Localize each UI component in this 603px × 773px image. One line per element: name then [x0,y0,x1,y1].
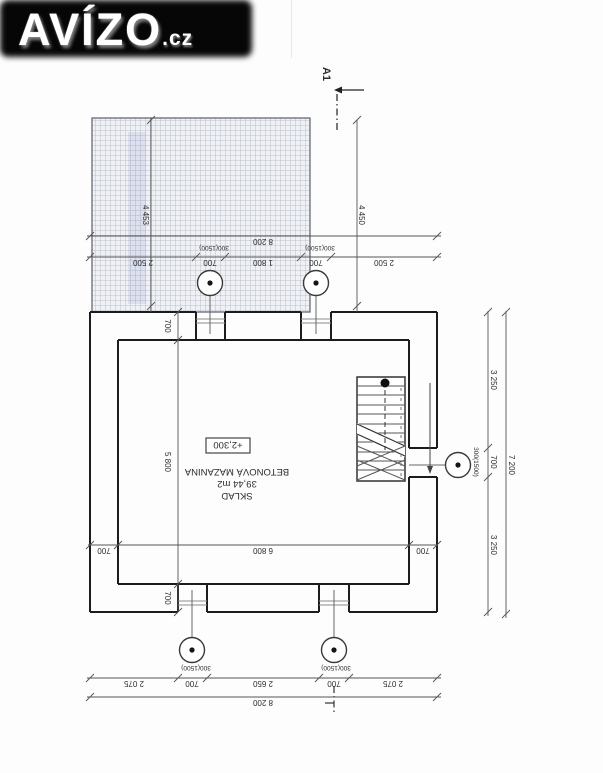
section-arrow-icon [334,87,342,94]
section-marker-bottom [325,686,334,712]
bottom-vent-symbols [180,638,347,663]
level-label: +2,300 [213,439,242,450]
dim-label: 700 [163,591,172,605]
staircase [357,377,405,481]
dim-label: 700 [97,546,111,555]
window-size-label: 300(1500) [199,244,229,251]
dim-right-chain: 3 250 700 3 250 300(1500) [472,308,498,616]
dim-label: 4 453 [141,205,150,226]
dim-bottom-overall: 8 200 [86,693,441,707]
bottom-wall-openings [178,590,349,637]
dim-label: 2 500 [132,258,153,267]
dim-label: 4 450 [357,205,366,226]
room-name-label: SKLAD [221,490,252,501]
dim-label: 3 250 [489,370,498,391]
room-area-label: 39,44 m2 [217,478,257,489]
window-size-label: 300(1500) [305,244,335,251]
dim-label: 2 075 [382,679,403,688]
dim-right-overall: 7 200 [502,308,516,618]
dim-inner-width: 700 6 800 700 [86,541,441,555]
window-size-label: 300(1500) [472,447,479,477]
dim-label: 8 200 [252,698,273,707]
dim-label: 2 075 [123,679,144,688]
window-size-label: 300(1500) [181,664,211,671]
logo-text: AVÍZO [18,4,162,55]
logo-suffix: .cz [162,27,193,50]
dim-label: 2 650 [252,679,273,688]
right-wall-opening [409,383,471,478]
room-floor-label: BETONOVÁ MAZANINA [184,466,289,477]
dim-label: 1 800 [252,258,273,267]
dim-label: 700 [489,455,498,469]
dim-inner-height: 700 5 800 700 [163,308,182,616]
duct-arrow-icon [427,466,433,474]
dim-label: 700 [327,679,341,688]
dim-label: 700 [185,679,199,688]
dim-label: 5 800 [163,452,172,473]
dim-label: 6 800 [252,546,273,555]
dim-label: 700 [163,319,172,333]
dim-bottom-chain: 2 075 700 2 650 700 2 075 300(1500) 300(… [86,664,441,688]
dim-label: 3 250 [489,535,498,556]
dim-label: 700 [309,258,323,267]
dim-label: 8 200 [252,237,273,246]
dim-label: 700 [203,258,217,267]
avizo-logo[interactable]: AVÍZO.cz [18,4,193,56]
section-label: A1 [320,67,332,81]
floorplan-drawing: A1 [0,0,603,768]
scanned-floorplan-page: AVÍZO.cz A1 [0,0,603,768]
window-size-label: 300(1500) [321,664,351,671]
scan-fold-artifact [291,0,292,58]
room-labels: +2,300 BETONOVÁ MAZANINA 39,44 m2 SKLAD [184,438,289,501]
dim-label: 7 200 [507,455,516,476]
dim-label: 2 500 [373,258,394,267]
stair-start-dot [381,379,390,388]
dim-label: 700 [416,546,430,555]
